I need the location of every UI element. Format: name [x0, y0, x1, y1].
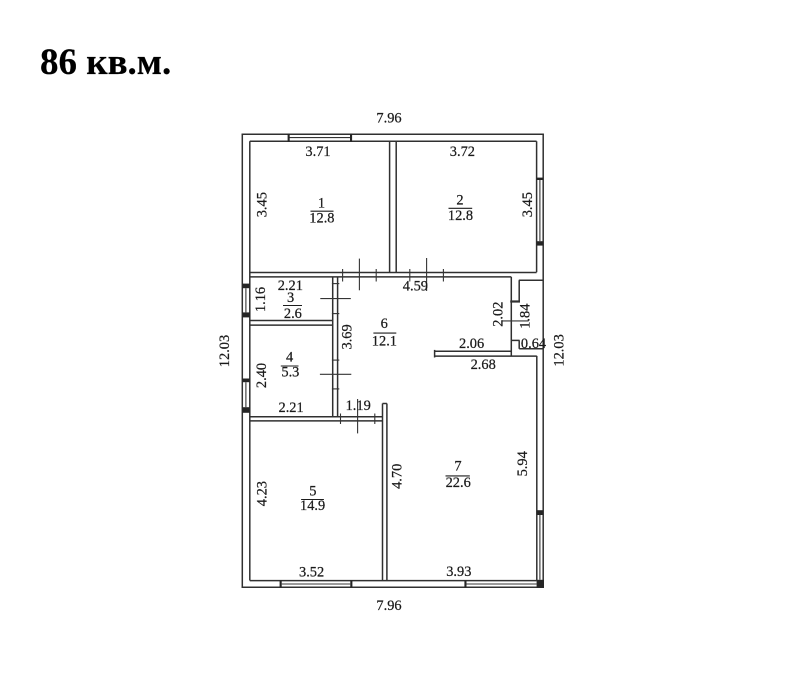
svg-text:4: 4 — [286, 350, 293, 366]
svg-text:1.84: 1.84 — [517, 304, 533, 329]
svg-text:12.8: 12.8 — [309, 211, 334, 227]
svg-text:12.1: 12.1 — [372, 334, 397, 350]
svg-text:12.03: 12.03 — [552, 334, 568, 366]
svg-text:7.96: 7.96 — [376, 598, 401, 614]
svg-text:2.6: 2.6 — [284, 306, 302, 322]
svg-text:22.6: 22.6 — [446, 475, 471, 491]
svg-text:0.64: 0.64 — [521, 336, 546, 352]
svg-text:4.70: 4.70 — [390, 464, 406, 489]
svg-text:4.59: 4.59 — [403, 279, 428, 295]
svg-text:7: 7 — [454, 459, 461, 475]
svg-text:1.16: 1.16 — [253, 287, 269, 312]
svg-text:3: 3 — [287, 290, 294, 306]
svg-text:3.93: 3.93 — [446, 564, 471, 580]
svg-text:3.71: 3.71 — [305, 144, 330, 160]
svg-text:86 кв.м.: 86 кв.м. — [40, 42, 171, 83]
svg-text:2.40: 2.40 — [254, 363, 270, 388]
svg-text:4.23: 4.23 — [255, 481, 271, 506]
svg-text:3.69: 3.69 — [340, 324, 356, 349]
svg-text:6: 6 — [381, 316, 388, 332]
svg-text:3.45: 3.45 — [255, 192, 271, 217]
svg-text:3.52: 3.52 — [299, 565, 324, 581]
svg-text:14.9: 14.9 — [300, 498, 325, 514]
svg-text:2.21: 2.21 — [279, 400, 304, 416]
svg-text:3.72: 3.72 — [450, 144, 475, 160]
svg-text:2.68: 2.68 — [471, 357, 496, 373]
svg-text:7.96: 7.96 — [376, 110, 401, 126]
svg-text:3.45: 3.45 — [520, 192, 536, 217]
svg-text:1: 1 — [318, 195, 325, 211]
svg-text:12.03: 12.03 — [217, 335, 233, 367]
svg-text:5.3: 5.3 — [281, 364, 299, 380]
svg-text:1.19: 1.19 — [346, 398, 371, 414]
svg-text:2.06: 2.06 — [459, 336, 484, 352]
svg-text:2: 2 — [456, 193, 463, 209]
svg-text:2.02: 2.02 — [491, 302, 507, 327]
svg-text:12.8: 12.8 — [448, 208, 473, 224]
svg-text:5.94: 5.94 — [515, 451, 531, 476]
